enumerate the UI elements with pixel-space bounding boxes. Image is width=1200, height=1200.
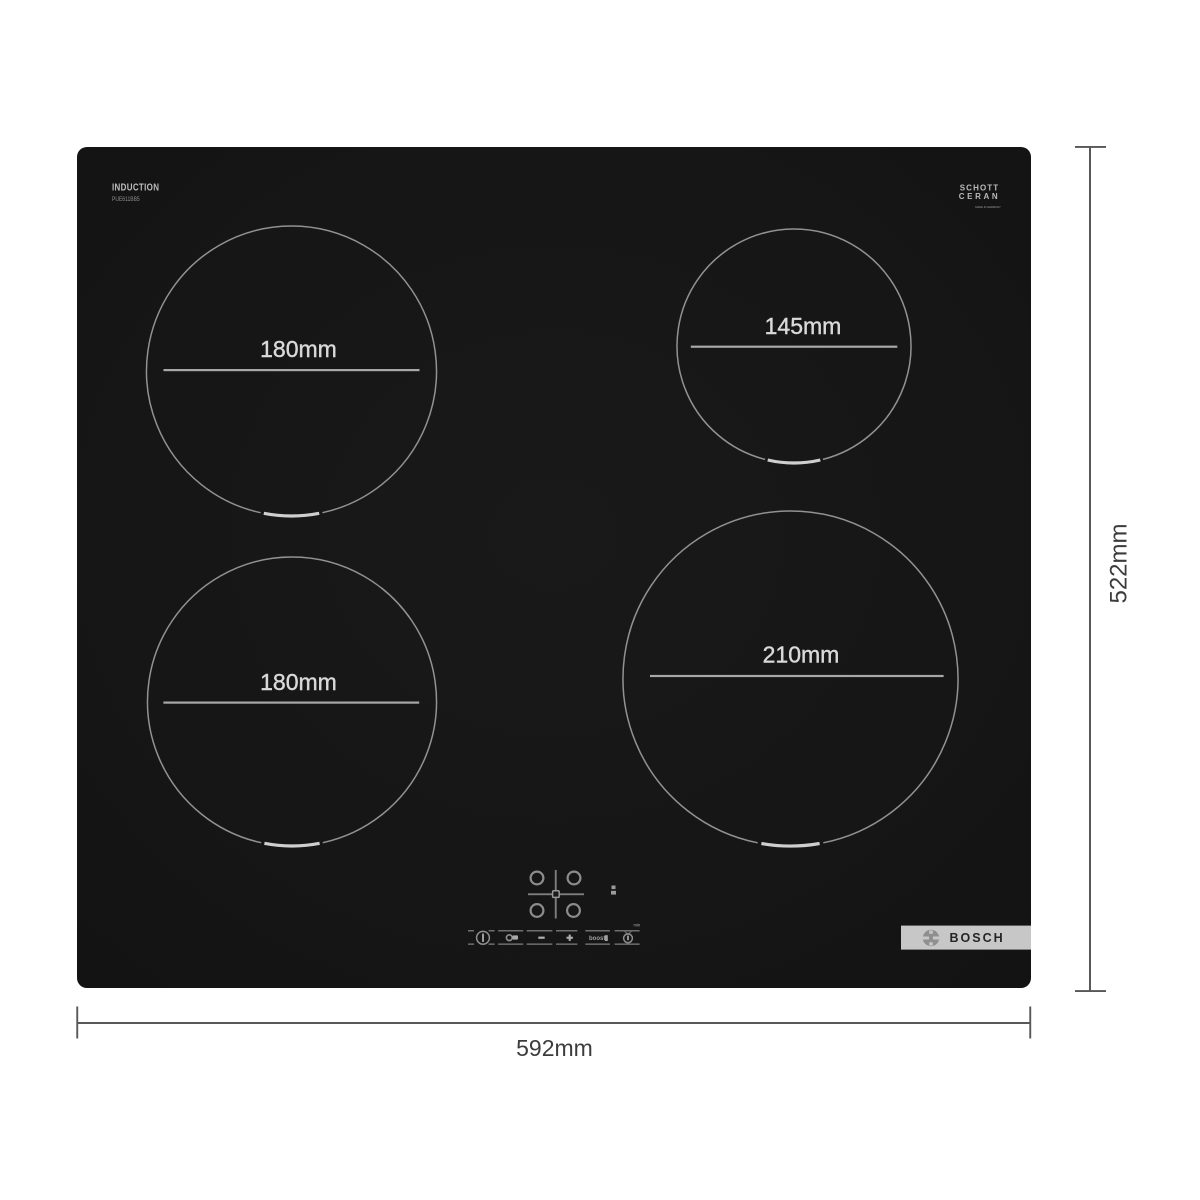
svg-text:CERAN: CERAN (959, 192, 1000, 201)
svg-text:210mm: 210mm (763, 642, 840, 668)
svg-text:SCHOTT: SCHOTT (960, 183, 1000, 192)
svg-text:MADE IN GERMANY: MADE IN GERMANY (975, 205, 1001, 209)
svg-text:boost: boost (589, 936, 605, 942)
svg-text:522mm: 522mm (1105, 523, 1132, 603)
svg-text:min: min (634, 923, 641, 928)
svg-text:180mm: 180mm (260, 336, 337, 362)
svg-text:145mm: 145mm (765, 313, 842, 339)
svg-text:180mm: 180mm (260, 669, 337, 695)
svg-text:BOSCH: BOSCH (950, 931, 1005, 945)
svg-text:592mm: 592mm (516, 1035, 593, 1061)
svg-text:INDUCTION: INDUCTION (112, 182, 159, 193)
svg-text:PUE611BB5: PUE611BB5 (112, 197, 140, 204)
